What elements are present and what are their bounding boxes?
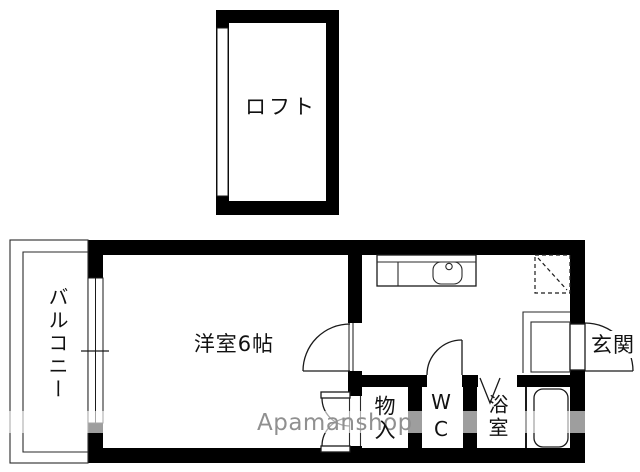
loft-window: [217, 28, 228, 196]
storage-door-panel-top: [321, 392, 350, 398]
storage-door-panel-bottom: [321, 446, 350, 452]
storage-label: 物入: [372, 395, 396, 443]
loft-label: ロフト: [245, 95, 317, 119]
balcony-label: バルコニー: [45, 287, 69, 402]
kitchen-counter: [377, 255, 476, 286]
counter-outline: [377, 255, 476, 286]
wc-door-opening: [427, 375, 462, 387]
entrance-door-slab: [570, 324, 585, 370]
bath-label: 浴室: [485, 394, 509, 440]
entrance-label: 玄関: [591, 333, 635, 357]
floorplan-canvas: Apamanshop ロフト 洋室6帖 バルコニー 物入 WC 浴室 玄関: [0, 0, 640, 472]
bedroom-door-opening: [348, 323, 362, 371]
wc-label: WC: [429, 390, 453, 444]
bedroom-label: 洋室6帖: [194, 332, 274, 356]
